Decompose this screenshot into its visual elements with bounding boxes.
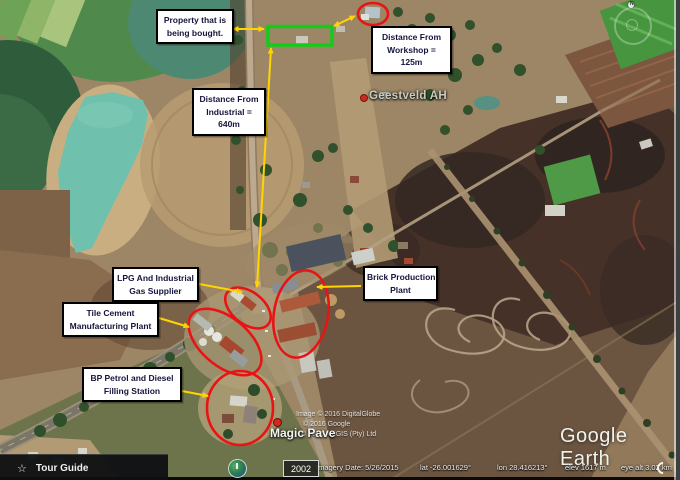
callout-property: Property that is being bought. [156, 9, 234, 44]
google-earth-window: Property that is being bought. Distance … [0, 0, 680, 480]
callout-bp-line2: Filling Station [86, 385, 178, 398]
longitude-readout: lon 28.416213° [497, 463, 548, 472]
historical-imagery-icon[interactable] [228, 459, 247, 478]
window-edge [676, 0, 680, 480]
callout-property-line1: Property that is [160, 14, 230, 27]
tour-guide-label: Tour Guide [36, 463, 89, 474]
imagery-year-label: 2002 [291, 464, 311, 474]
elevation-readout: elev 1617 m [565, 463, 606, 472]
callout-brick: Brick Production Plant [363, 266, 438, 301]
callout-industrial: Distance From Industrial = 640m [192, 88, 266, 136]
callout-lpg-line1: LPG And Industrial [116, 272, 195, 285]
arrow-brick [317, 286, 361, 287]
tour-guide-bar[interactable]: ☆ Tour Guide [0, 454, 168, 480]
callout-workshop-line1: Distance From [375, 31, 448, 44]
imagery-date-readout: Imagery Date: 5/26/2015 [316, 463, 399, 472]
callout-tile-line1: Tile Cement [66, 307, 155, 320]
callout-workshop-line2: Workshop = [375, 44, 448, 57]
callout-tile: Tile Cement Manufacturing Plant [62, 302, 159, 337]
map-canvas[interactable] [0, 0, 680, 480]
callout-industrial-line2: Industrial = [196, 106, 262, 119]
callout-industrial-line3: 640m [196, 118, 262, 131]
callout-industrial-line1: Distance From [196, 93, 262, 106]
callout-brick-line1: Brick Production [367, 271, 434, 284]
callout-brick-line2: Plant [367, 284, 434, 297]
compass-hub[interactable] [626, 19, 638, 31]
callout-workshop-line3: 125m [375, 56, 448, 69]
business-label: Magic Pave [270, 426, 335, 440]
callout-lpg: LPG And Industrial Gas Supplier [112, 267, 199, 302]
compass-control[interactable]: N [610, 3, 654, 47]
star-icon: ☆ [17, 462, 27, 475]
callout-tile-line2: Manufacturing Plant [66, 320, 155, 333]
callout-bp: BP Petrol and Diesel Filling Station [82, 367, 182, 402]
imagery-watermark: Image © 2016 DigitalGlobe [296, 411, 380, 418]
settlement-label: Geestveld AH [369, 90, 447, 102]
callout-bp-line1: BP Petrol and Diesel [86, 372, 178, 385]
imagery-year-badge[interactable]: 2002 [283, 460, 319, 477]
compass-north-label: N [630, 1, 634, 7]
callout-lpg-line2: Gas Supplier [116, 285, 195, 298]
geestveld-placemark-icon[interactable] [360, 94, 368, 102]
latitude-readout: lat -26.001629° [420, 463, 471, 472]
callout-workshop: Distance From Workshop = 125m [371, 26, 452, 74]
callout-property-line2: being bought. [160, 27, 230, 40]
